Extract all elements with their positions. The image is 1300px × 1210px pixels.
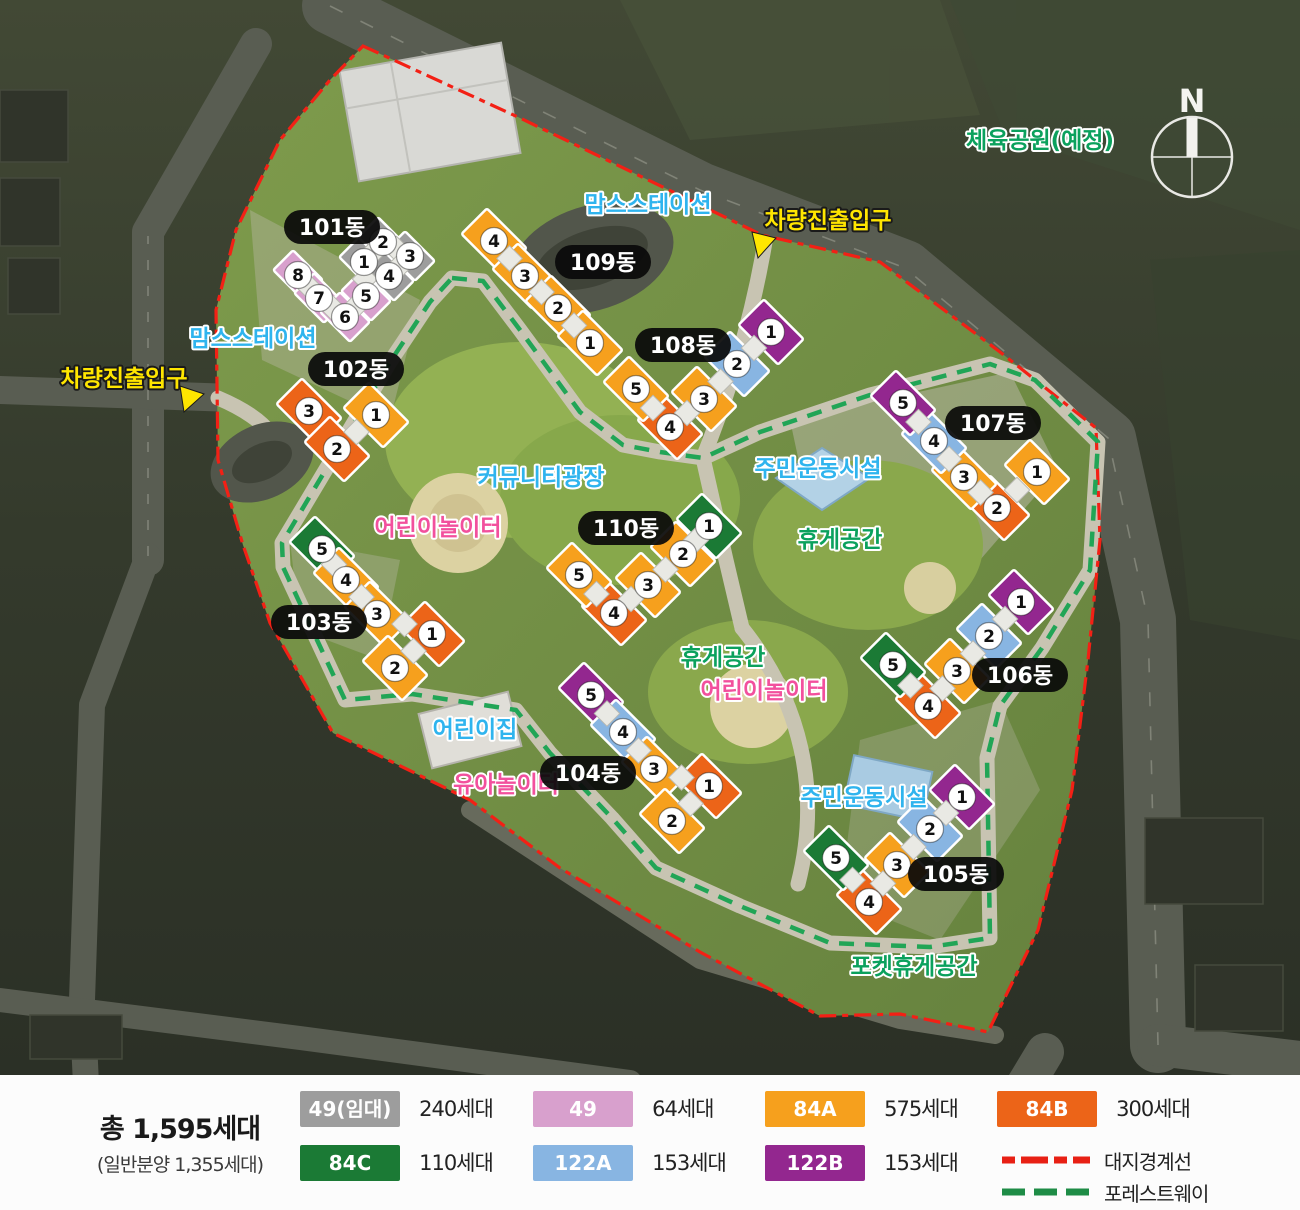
- unit-number: 2: [666, 812, 678, 832]
- unit-number: 4: [922, 697, 934, 717]
- unit-number: 3: [891, 856, 903, 876]
- building-label-102동: 102동: [308, 352, 404, 386]
- unit-number: 7: [313, 289, 325, 309]
- legend-item-49-rental: 49(임대) 240세대: [300, 1091, 493, 1129]
- unit-number: 3: [303, 402, 315, 422]
- unit-number: 2: [331, 440, 343, 460]
- site-plan-map: 8765123431254312543121234512345123451234…: [0, 0, 1300, 1075]
- building-label-108동: 108동: [635, 328, 731, 362]
- unit-number: 4: [340, 571, 352, 591]
- unit-number: 1: [956, 788, 968, 808]
- legend-line-forest-way: 포레스트웨이: [1000, 1179, 1208, 1205]
- legend: 총 1,595세대 (일반분양 1,355세대) 49(임대) 240세대 49…: [0, 1075, 1300, 1210]
- unit-number: 1: [584, 334, 596, 354]
- building-label-text: 105동: [923, 863, 989, 888]
- playground-circle-3: [904, 562, 956, 614]
- legend-line-label-boundary: 대지경계선: [1104, 1146, 1191, 1175]
- legend-item-84c: 84C 110세대: [300, 1145, 493, 1183]
- legend-count-84b: 300세대: [1116, 1091, 1190, 1127]
- total-households: 총 1,595세대 (일반분양 1,355세대): [40, 1107, 320, 1177]
- unit-number: 4: [928, 432, 940, 452]
- unit-number: 3: [642, 576, 654, 596]
- unit-number: 2: [377, 233, 389, 253]
- unit-number: 1: [358, 253, 370, 273]
- facility-label: 주민운동시설: [755, 456, 882, 482]
- unit-number: 3: [698, 390, 710, 410]
- unit-number: 3: [958, 468, 970, 488]
- forest-way-swatch: [1000, 1186, 1092, 1198]
- unit-number: 5: [573, 566, 585, 586]
- building-label-text: 102동: [323, 358, 389, 383]
- unit-number: 3: [371, 605, 383, 625]
- compass-needle: [1187, 118, 1198, 157]
- unit-number: 1: [1015, 593, 1027, 613]
- total-households-main: 총 1,595세대: [40, 1107, 320, 1146]
- building-label-106동: 106동: [972, 658, 1068, 692]
- legend-item-122b: 122B 153세대: [765, 1145, 958, 1183]
- unit-number: 5: [585, 686, 597, 706]
- legend-item-49: 49 64세대: [533, 1091, 713, 1129]
- unit-number: 3: [648, 760, 660, 780]
- unit-number: 1: [703, 777, 715, 797]
- unit-number: 2: [731, 355, 743, 375]
- unit-number: 2: [552, 299, 564, 319]
- unit-number: 5: [360, 287, 372, 307]
- legend-count-49-rental: 240세대: [419, 1091, 493, 1127]
- unit-number: 2: [677, 545, 689, 565]
- unit-number: 3: [404, 247, 416, 267]
- unit-number: 2: [924, 820, 936, 840]
- unit-number: 1: [765, 323, 777, 343]
- building-label-text: 104동: [555, 762, 621, 787]
- legend-item-84a: 84A 575세대: [765, 1091, 958, 1129]
- unit-number: 4: [383, 267, 395, 287]
- facility-label: 어린이놀이터: [701, 678, 828, 704]
- unit-number: 1: [370, 406, 382, 426]
- legend-chip-122a: 122A: [533, 1145, 633, 1181]
- building-label-109동: 109동: [555, 245, 651, 279]
- unit-number: 2: [991, 499, 1003, 519]
- unit-number: 4: [608, 604, 620, 624]
- building-label-text: 109동: [570, 251, 636, 276]
- unit-number: 4: [488, 232, 500, 252]
- building-label-103동: 103동: [271, 605, 367, 639]
- unit-number: 6: [339, 308, 351, 328]
- unit-number: 3: [519, 267, 531, 287]
- site-plan-page: 8765123431254312543121234512345123451234…: [0, 0, 1300, 1210]
- unit-number: 5: [897, 394, 909, 414]
- compass-north-label: N: [1179, 82, 1206, 120]
- facility-label: 체육공원(예정): [966, 128, 1114, 154]
- boundary-line-swatch: [1000, 1154, 1092, 1166]
- unit-number: 4: [617, 723, 629, 743]
- unit-number: 1: [426, 625, 438, 645]
- building-label-text: 110동: [593, 517, 659, 542]
- legend-count-122a: 153세대: [652, 1145, 726, 1181]
- facility-label: 맘스스테이션: [585, 192, 712, 218]
- facility-label: 맘스스테이션: [190, 326, 317, 352]
- legend-chip-49: 49: [533, 1091, 633, 1127]
- legend-chip-122b: 122B: [765, 1145, 865, 1181]
- facility-label: 어린이놀이터: [375, 515, 502, 541]
- unit-number: 5: [830, 849, 842, 869]
- unit-number: 5: [630, 380, 642, 400]
- building-label-text: 107동: [960, 412, 1026, 437]
- facility-label: 커뮤니티광장: [478, 465, 605, 491]
- building-label-110동: 110동: [578, 511, 674, 545]
- unit-number: 8: [292, 266, 304, 286]
- facility-label: 차량진출입구: [765, 208, 892, 234]
- legend-line-site-boundary: 대지경계선: [1000, 1147, 1191, 1173]
- facility-label: 주민운동시설: [801, 785, 928, 811]
- building-label-text: 106동: [987, 664, 1053, 689]
- legend-chip-84b: 84B: [997, 1091, 1097, 1127]
- legend-chip-49-rental: 49(임대): [300, 1091, 400, 1127]
- building-label-text: 103동: [286, 611, 352, 636]
- building-label-104동: 104동: [540, 756, 636, 790]
- building-label-text: 101동: [299, 216, 365, 241]
- unit-number: 5: [887, 656, 899, 676]
- unit-number: 1: [1031, 463, 1043, 483]
- unit-number: 5: [316, 540, 328, 560]
- total-households-sub: (일반분양 1,355세대): [40, 1150, 320, 1177]
- building-label-105동: 105동: [908, 857, 1004, 891]
- building-label-107동: 107동: [945, 406, 1041, 440]
- legend-item-122a: 122A 153세대: [533, 1145, 726, 1183]
- facility-label: 어린이집: [433, 717, 518, 743]
- legend-chip-84c: 84C: [300, 1145, 400, 1181]
- legend-count-49: 64세대: [652, 1091, 713, 1127]
- building-label-text: 108동: [650, 334, 716, 359]
- facility-label: 휴게공간: [798, 527, 883, 553]
- legend-chip-84a: 84A: [765, 1091, 865, 1127]
- legend-count-122b: 153세대: [884, 1145, 958, 1181]
- unit-number: 2: [983, 627, 995, 647]
- legend-line-label-forest: 포레스트웨이: [1104, 1178, 1208, 1207]
- unit-number: 1: [703, 517, 715, 537]
- unit-number: 4: [863, 893, 875, 913]
- unit-number: 2: [389, 659, 401, 679]
- unit-number: 4: [664, 418, 676, 438]
- unit-number: 3: [951, 662, 963, 682]
- facility-label: 휴게공간: [681, 645, 766, 671]
- facility-label: 차량진출입구: [61, 366, 188, 392]
- legend-count-84a: 575세대: [884, 1091, 958, 1127]
- facility-label: 포켓휴게공간: [851, 954, 978, 980]
- legend-item-84b: 84B 300세대: [997, 1091, 1190, 1129]
- legend-count-84c: 110세대: [419, 1145, 493, 1181]
- building-label-101동: 101동: [284, 210, 380, 244]
